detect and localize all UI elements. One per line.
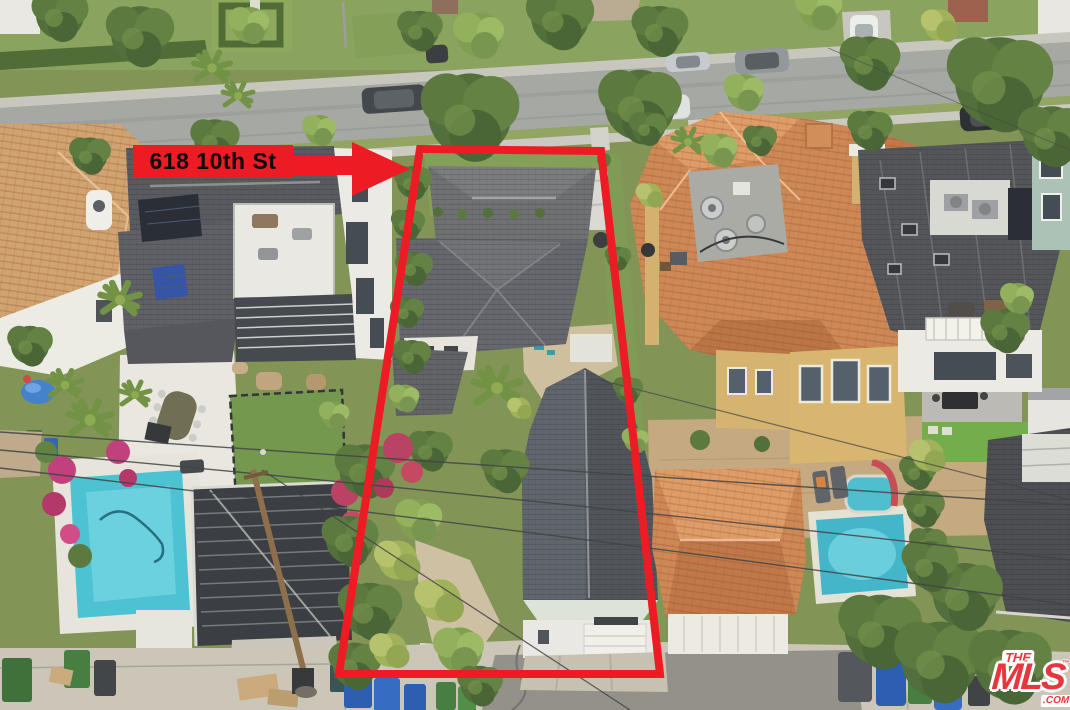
mls-logo-mls: MLS: [991, 657, 1066, 697]
listing-photo: 618 10th St THE MLS ™ .COM: [0, 0, 1070, 710]
mls-logo: THE MLS ™ .COM: [991, 649, 1070, 708]
address-label: 618 10th St: [133, 145, 293, 178]
property-boundary-outline: [339, 149, 660, 674]
annotation-overlay: [0, 0, 1070, 710]
mls-logo-com: .COM: [1040, 695, 1070, 707]
address-arrow: [292, 142, 410, 196]
mls-logo-trademark: ™: [1062, 660, 1069, 667]
